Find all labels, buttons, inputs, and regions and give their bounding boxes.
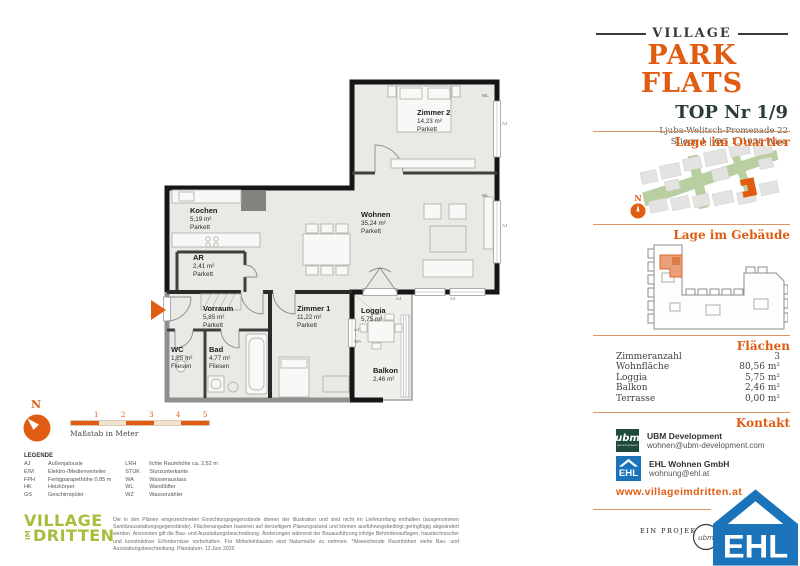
scale-numbers: 1 2 3 4 5: [70, 411, 212, 419]
table-row: Loggia5,75 m²: [616, 373, 780, 383]
map-compass: N: [629, 193, 647, 224]
wall-label-aj: AJ: [396, 296, 401, 301]
table-row: Wohnfläche80,56 m²: [616, 362, 780, 372]
divider: [593, 509, 711, 510]
legend-title: LEGENDE: [24, 453, 304, 459]
compass-n-label: N: [31, 398, 41, 411]
flaechen-title: Flächen: [593, 339, 790, 353]
wall-label-wl: WL: [482, 93, 489, 98]
ubm-logo: ubm development: [616, 429, 639, 452]
wall-label-aj: AJ: [502, 121, 507, 126]
room-zimmer1: Zimmer 111,22 m²Parkett: [297, 305, 330, 331]
quartier-map: [636, 146, 788, 222]
wall-label-wl: WL: [482, 193, 489, 198]
brand-park-flats: PARK FLATS: [596, 42, 788, 98]
scale-bar: 1 2 3 4 5 Maßstab in Meter: [70, 411, 212, 438]
ehl-big-logo: EHL: [711, 487, 800, 566]
room-zimmer2: Zimmer 214,23 m²Parkett: [417, 109, 450, 135]
map-compass-icon: [630, 203, 646, 219]
divider: [593, 335, 790, 336]
svg-text:EHL: EHL: [723, 528, 788, 565]
kitchen-shaft: [241, 190, 266, 211]
scale-caption: Maßstab in Meter: [70, 429, 212, 438]
brand-village-text: VILLAGE: [652, 26, 732, 41]
rule-left: [596, 33, 646, 35]
room-wc: WC1,85 m²Fliesen: [171, 346, 192, 372]
legend-col1: AJAußenjalousie E/MElektro-/Medienvertei…: [24, 461, 111, 500]
header: VILLAGE PARK FLATS TOP Nr 1/9 Ljuba-Weli…: [596, 26, 788, 147]
legend-col2: LRHlichte Raumhöhe ca. 2,52 m STUKSturzu…: [125, 461, 217, 500]
contact-email[interactable]: wohnen@ubm-development.com: [647, 441, 765, 451]
wall-label-wa: WA: [354, 339, 361, 344]
unit-title: TOP Nr 1/9: [596, 102, 788, 123]
gebaeude-title: Lage im Gebäude: [593, 228, 790, 242]
wall-label-aj: AJ: [502, 223, 507, 228]
im-rotated: IM: [21, 531, 36, 540]
map-compass-n: N: [629, 193, 647, 203]
compass-icon: [22, 413, 52, 443]
contact-name: EHL Wohnen GmbH: [649, 459, 729, 469]
flaechen-table: Zimmeranzahl3 Wohnfläche80,56 m² Loggia5…: [616, 352, 780, 404]
contact-name: UBM Development: [647, 431, 765, 441]
ehl-logo: EHL: [616, 456, 641, 481]
brand-village: VILLAGE: [596, 26, 788, 41]
room-wohnen: Wohnen35,24 m²Parkett: [361, 211, 390, 237]
divider: [593, 224, 790, 225]
village-im-dritten-logo: VILLAGE IM DRITTEN: [24, 513, 115, 543]
wall-label-aj: AJ: [354, 327, 359, 332]
kontakt-title: Kontakt: [593, 416, 790, 430]
floor-plan-drawing: [145, 73, 525, 418]
floorplan-sheet: Zimmer 214,23 m²Parkett Wohnen35,24 m²Pa…: [0, 0, 800, 566]
divider: [593, 412, 790, 413]
room-kochen: Kochen5,19 m²Parkett: [190, 207, 218, 233]
contact-email[interactable]: wohnung@ehl.at: [649, 469, 729, 479]
gebaeude-plan: [626, 243, 788, 331]
disclaimer-text: Die in den Plänen eingezeichneten Einric…: [113, 517, 459, 553]
floor-plan: Zimmer 214,23 m²Parkett Wohnen35,24 m²Pa…: [145, 73, 525, 418]
room-vorraum: Vorraum5,85 m²Parkett: [203, 305, 233, 331]
room-bad: Bad4,77 m²Fliesen: [209, 346, 230, 372]
contact-ehl: EHL EHL Wohnen GmbH wohnung@ehl.at: [616, 456, 729, 481]
room-balkon: Balkon2,46 m²: [373, 367, 398, 384]
table-row: Zimmeranzahl3: [616, 352, 780, 362]
legend: LEGENDE AJAußenjalousie E/MElektro-/Medi…: [24, 453, 304, 500]
table-row: Terrasse0,00 m²: [616, 394, 780, 404]
scale-segments: [70, 420, 210, 426]
room-ar: AR2,41 m²Parkett: [193, 254, 214, 280]
room-loggia: Loggia5,75 m²: [361, 307, 386, 324]
rule-right: [738, 33, 788, 35]
table-row: Balkon2,46 m²: [616, 383, 780, 393]
wall-label-aj: AJ: [450, 296, 455, 301]
svg-text:EHL: EHL: [619, 468, 638, 479]
contact-ubm: ubm development UBM Development wohnen@u…: [616, 429, 765, 452]
divider: [593, 131, 790, 132]
